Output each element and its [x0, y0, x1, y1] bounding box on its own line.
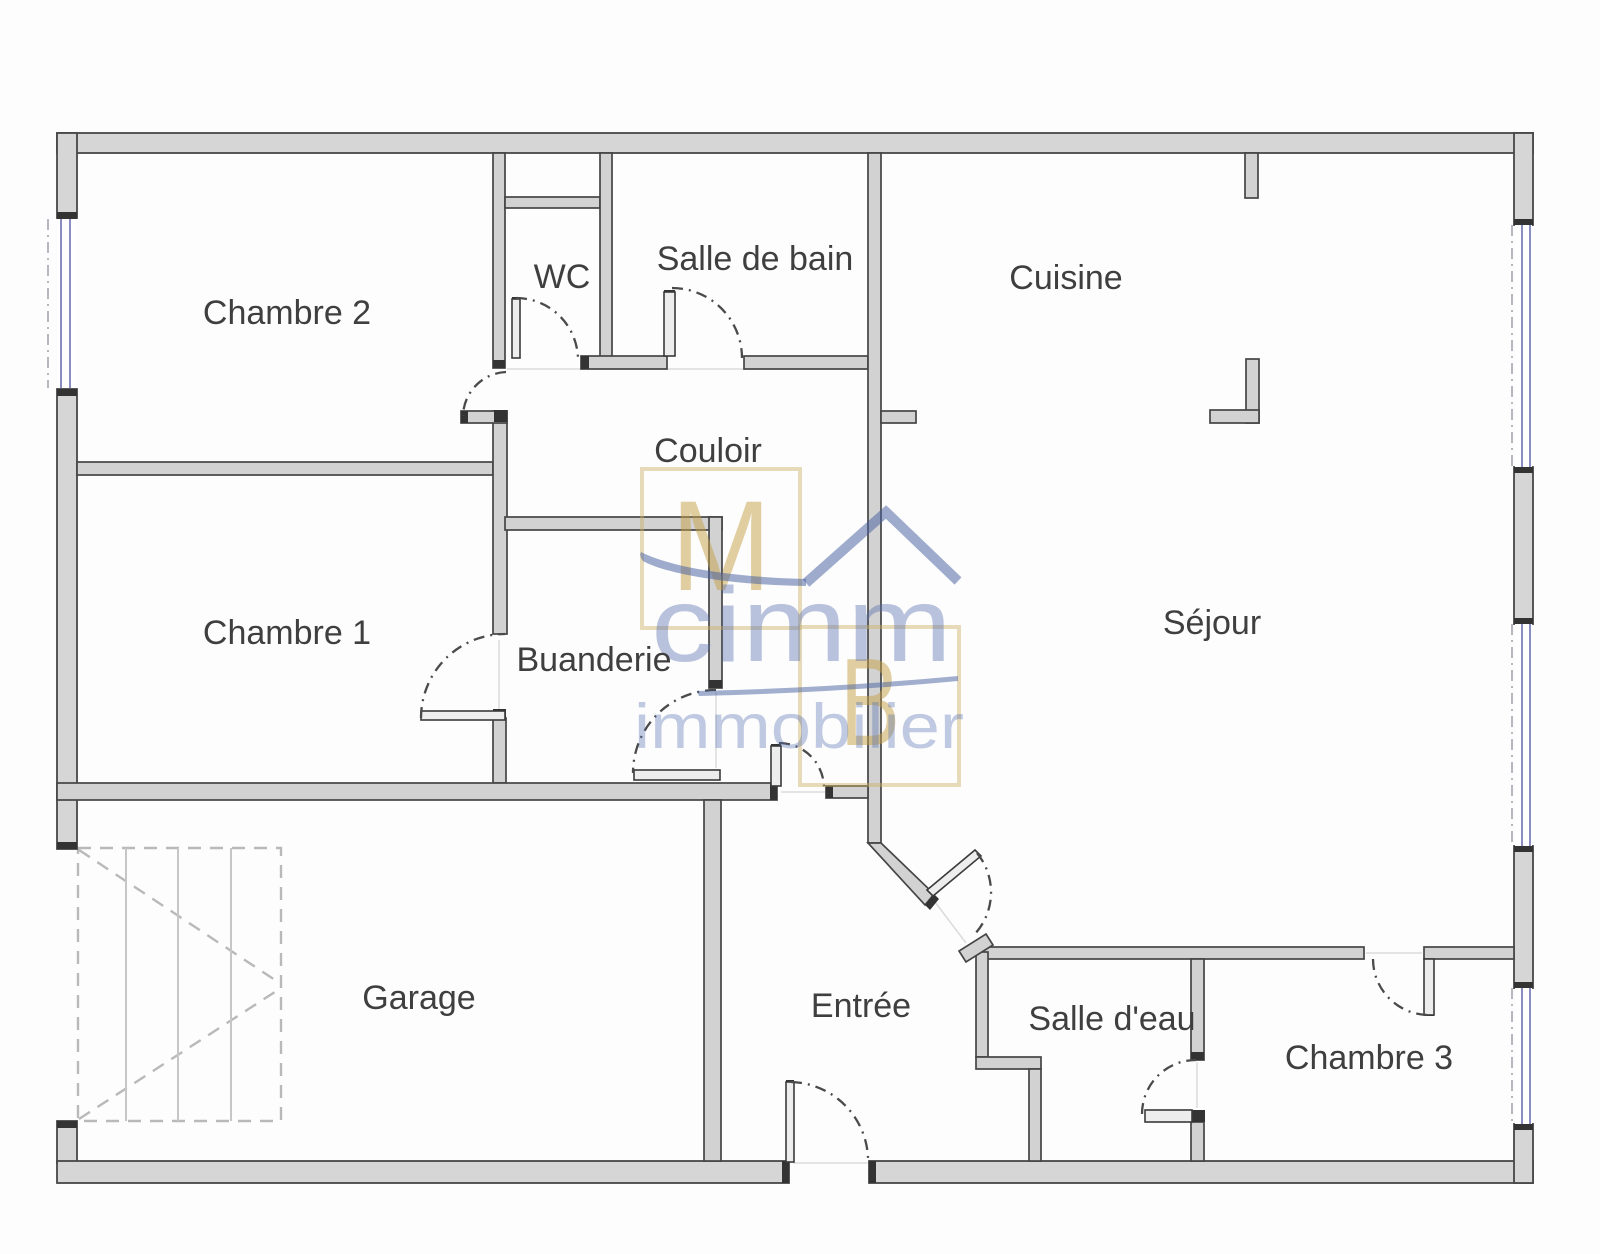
svg-text:Cuisine: Cuisine — [1009, 259, 1122, 297]
svg-text:immobilier: immobilier — [634, 692, 964, 762]
svg-text:WC: WC — [534, 258, 591, 296]
svg-text:Chambre 2: Chambre 2 — [203, 294, 371, 332]
svg-text:Séjour: Séjour — [1163, 604, 1261, 642]
svg-text:cimm: cimm — [651, 566, 952, 684]
svg-text:Chambre 3: Chambre 3 — [1285, 1039, 1453, 1077]
svg-text:Couloir: Couloir — [654, 432, 762, 470]
svg-text:Chambre 1: Chambre 1 — [203, 614, 371, 652]
svg-text:Buanderie: Buanderie — [516, 641, 671, 679]
svg-text:Salle d'eau: Salle d'eau — [1028, 1000, 1195, 1038]
svg-text:Entrée: Entrée — [811, 987, 911, 1025]
svg-text:Garage: Garage — [362, 979, 475, 1017]
svg-text:Salle de bain: Salle de bain — [657, 240, 854, 278]
